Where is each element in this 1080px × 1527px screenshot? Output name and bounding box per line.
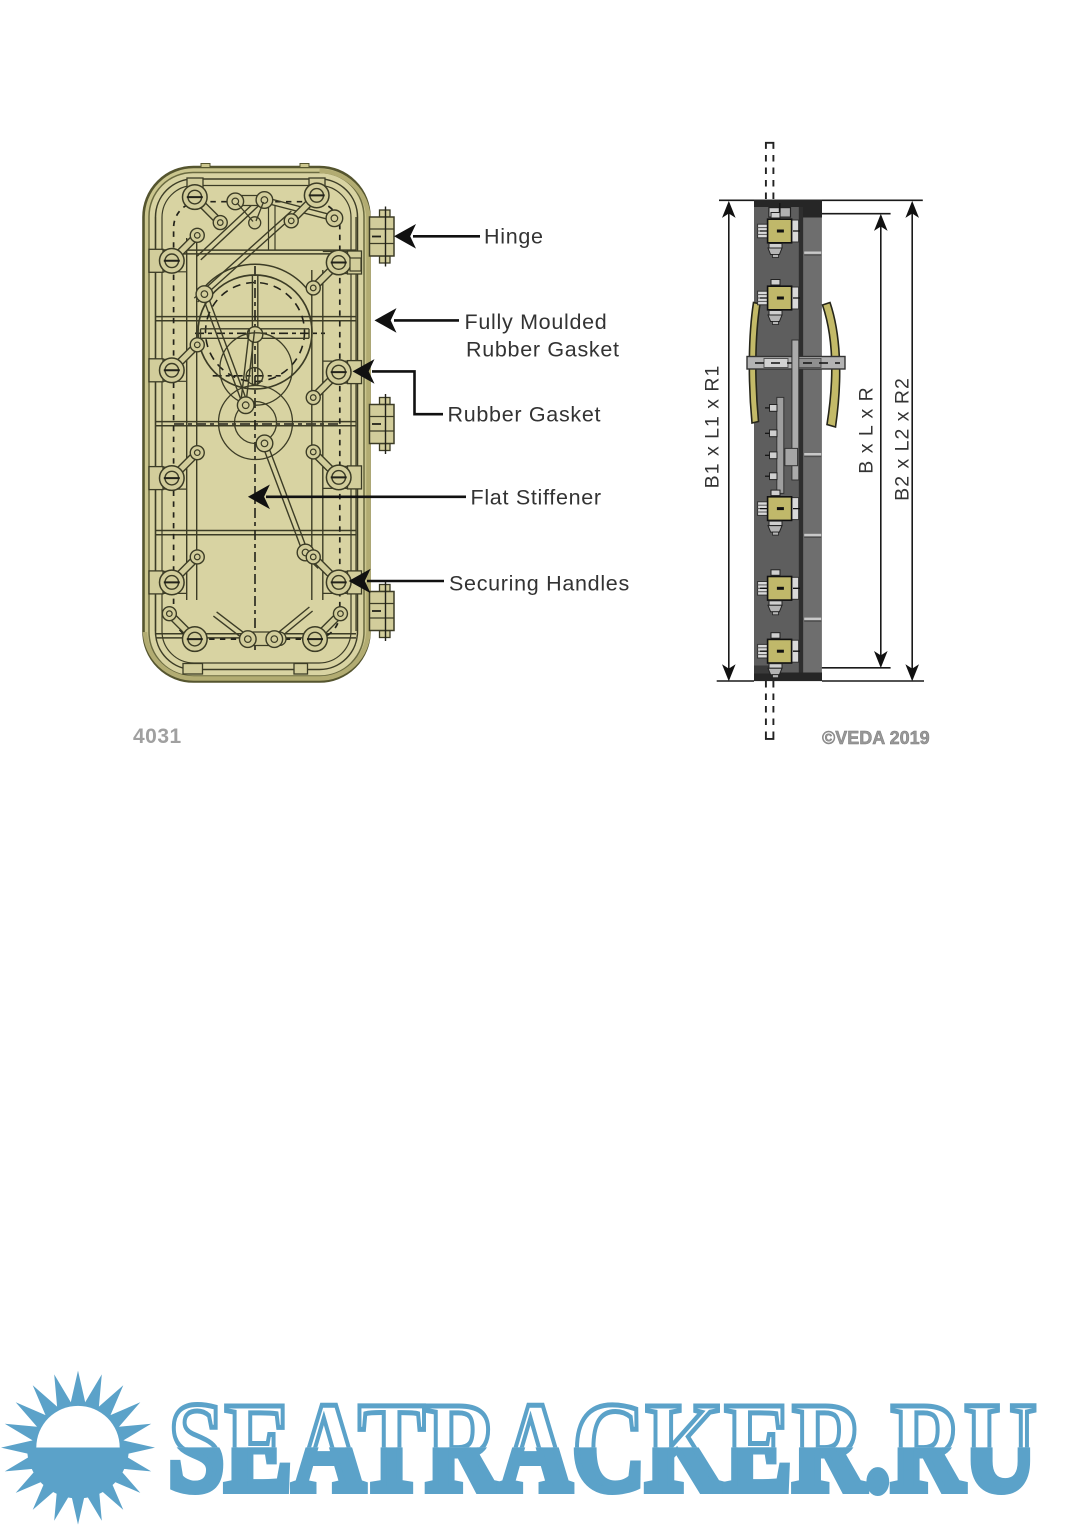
svg-text:B1 x L1 x R1: B1 x L1 x R1 <box>702 365 724 489</box>
svg-text:Flat Stiffener: Flat Stiffener <box>471 486 602 510</box>
svg-text:Securing Handles: Securing Handles <box>449 572 630 596</box>
svg-text:Rubber Gasket: Rubber Gasket <box>448 403 602 427</box>
svg-text:Fully Moulded: Fully Moulded <box>465 310 608 334</box>
svg-text:Rubber Gasket: Rubber Gasket <box>466 338 620 362</box>
svg-text:B2 x L2 x R2: B2 x L2 x R2 <box>892 377 914 501</box>
svg-text:4031: 4031 <box>133 725 182 748</box>
svg-text:©VEDA 2019: ©VEDA 2019 <box>822 728 930 748</box>
svg-text:B x L x R: B x L x R <box>856 386 878 473</box>
svg-text:Hinge: Hinge <box>484 225 544 249</box>
